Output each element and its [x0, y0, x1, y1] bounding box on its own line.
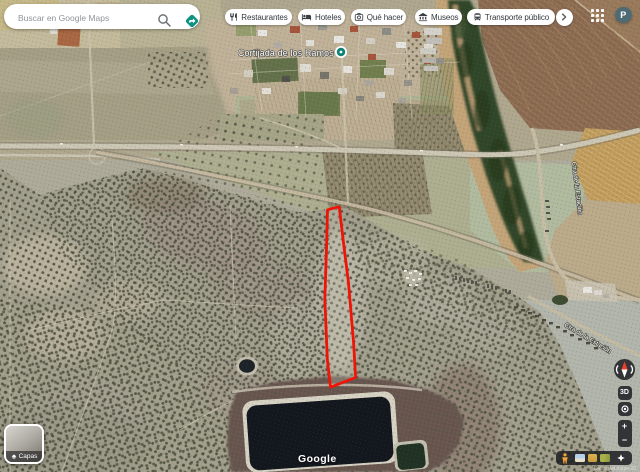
svg-text:Cortijada de los Ramos: Cortijada de los Ramos	[238, 48, 334, 58]
